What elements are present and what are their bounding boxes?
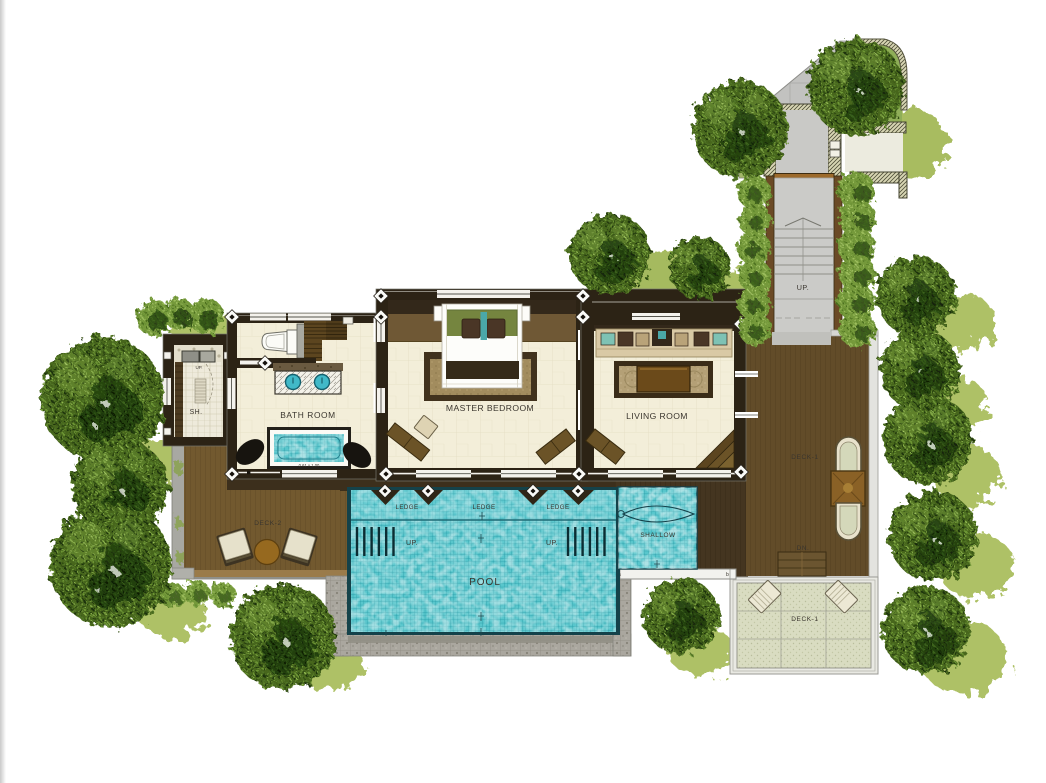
- svg-text:MASTER BEDROOM: MASTER BEDROOM: [446, 403, 534, 413]
- svg-text:LEDGE: LEDGE: [396, 504, 419, 511]
- svg-text:UP.: UP.: [797, 283, 810, 292]
- svg-text:BATH ROOM: BATH ROOM: [280, 410, 336, 420]
- svg-text:UP.: UP.: [546, 540, 558, 547]
- svg-text:DECK-1: DECK-1: [791, 454, 818, 461]
- svg-text:LEDGE: LEDGE: [473, 504, 496, 511]
- svg-text:POOL: POOL: [469, 577, 501, 588]
- svg-text:DECK-2: DECK-2: [254, 520, 281, 527]
- svg-text:UP.: UP.: [196, 365, 203, 370]
- svg-text:DECK-1: DECK-1: [791, 616, 818, 623]
- svg-text:LIVING ROOM: LIVING ROOM: [626, 411, 688, 421]
- svg-text:DN.: DN.: [797, 545, 810, 552]
- svg-text:UP.: UP.: [406, 540, 418, 547]
- svg-text:SH.: SH.: [190, 409, 203, 416]
- svg-text:b: b: [726, 572, 729, 578]
- svg-text:0.61 x 1.00: 0.61 x 1.00: [299, 463, 320, 468]
- svg-text:LEDGE: LEDGE: [547, 504, 570, 511]
- svg-text:SHALLOW: SHALLOW: [640, 532, 676, 539]
